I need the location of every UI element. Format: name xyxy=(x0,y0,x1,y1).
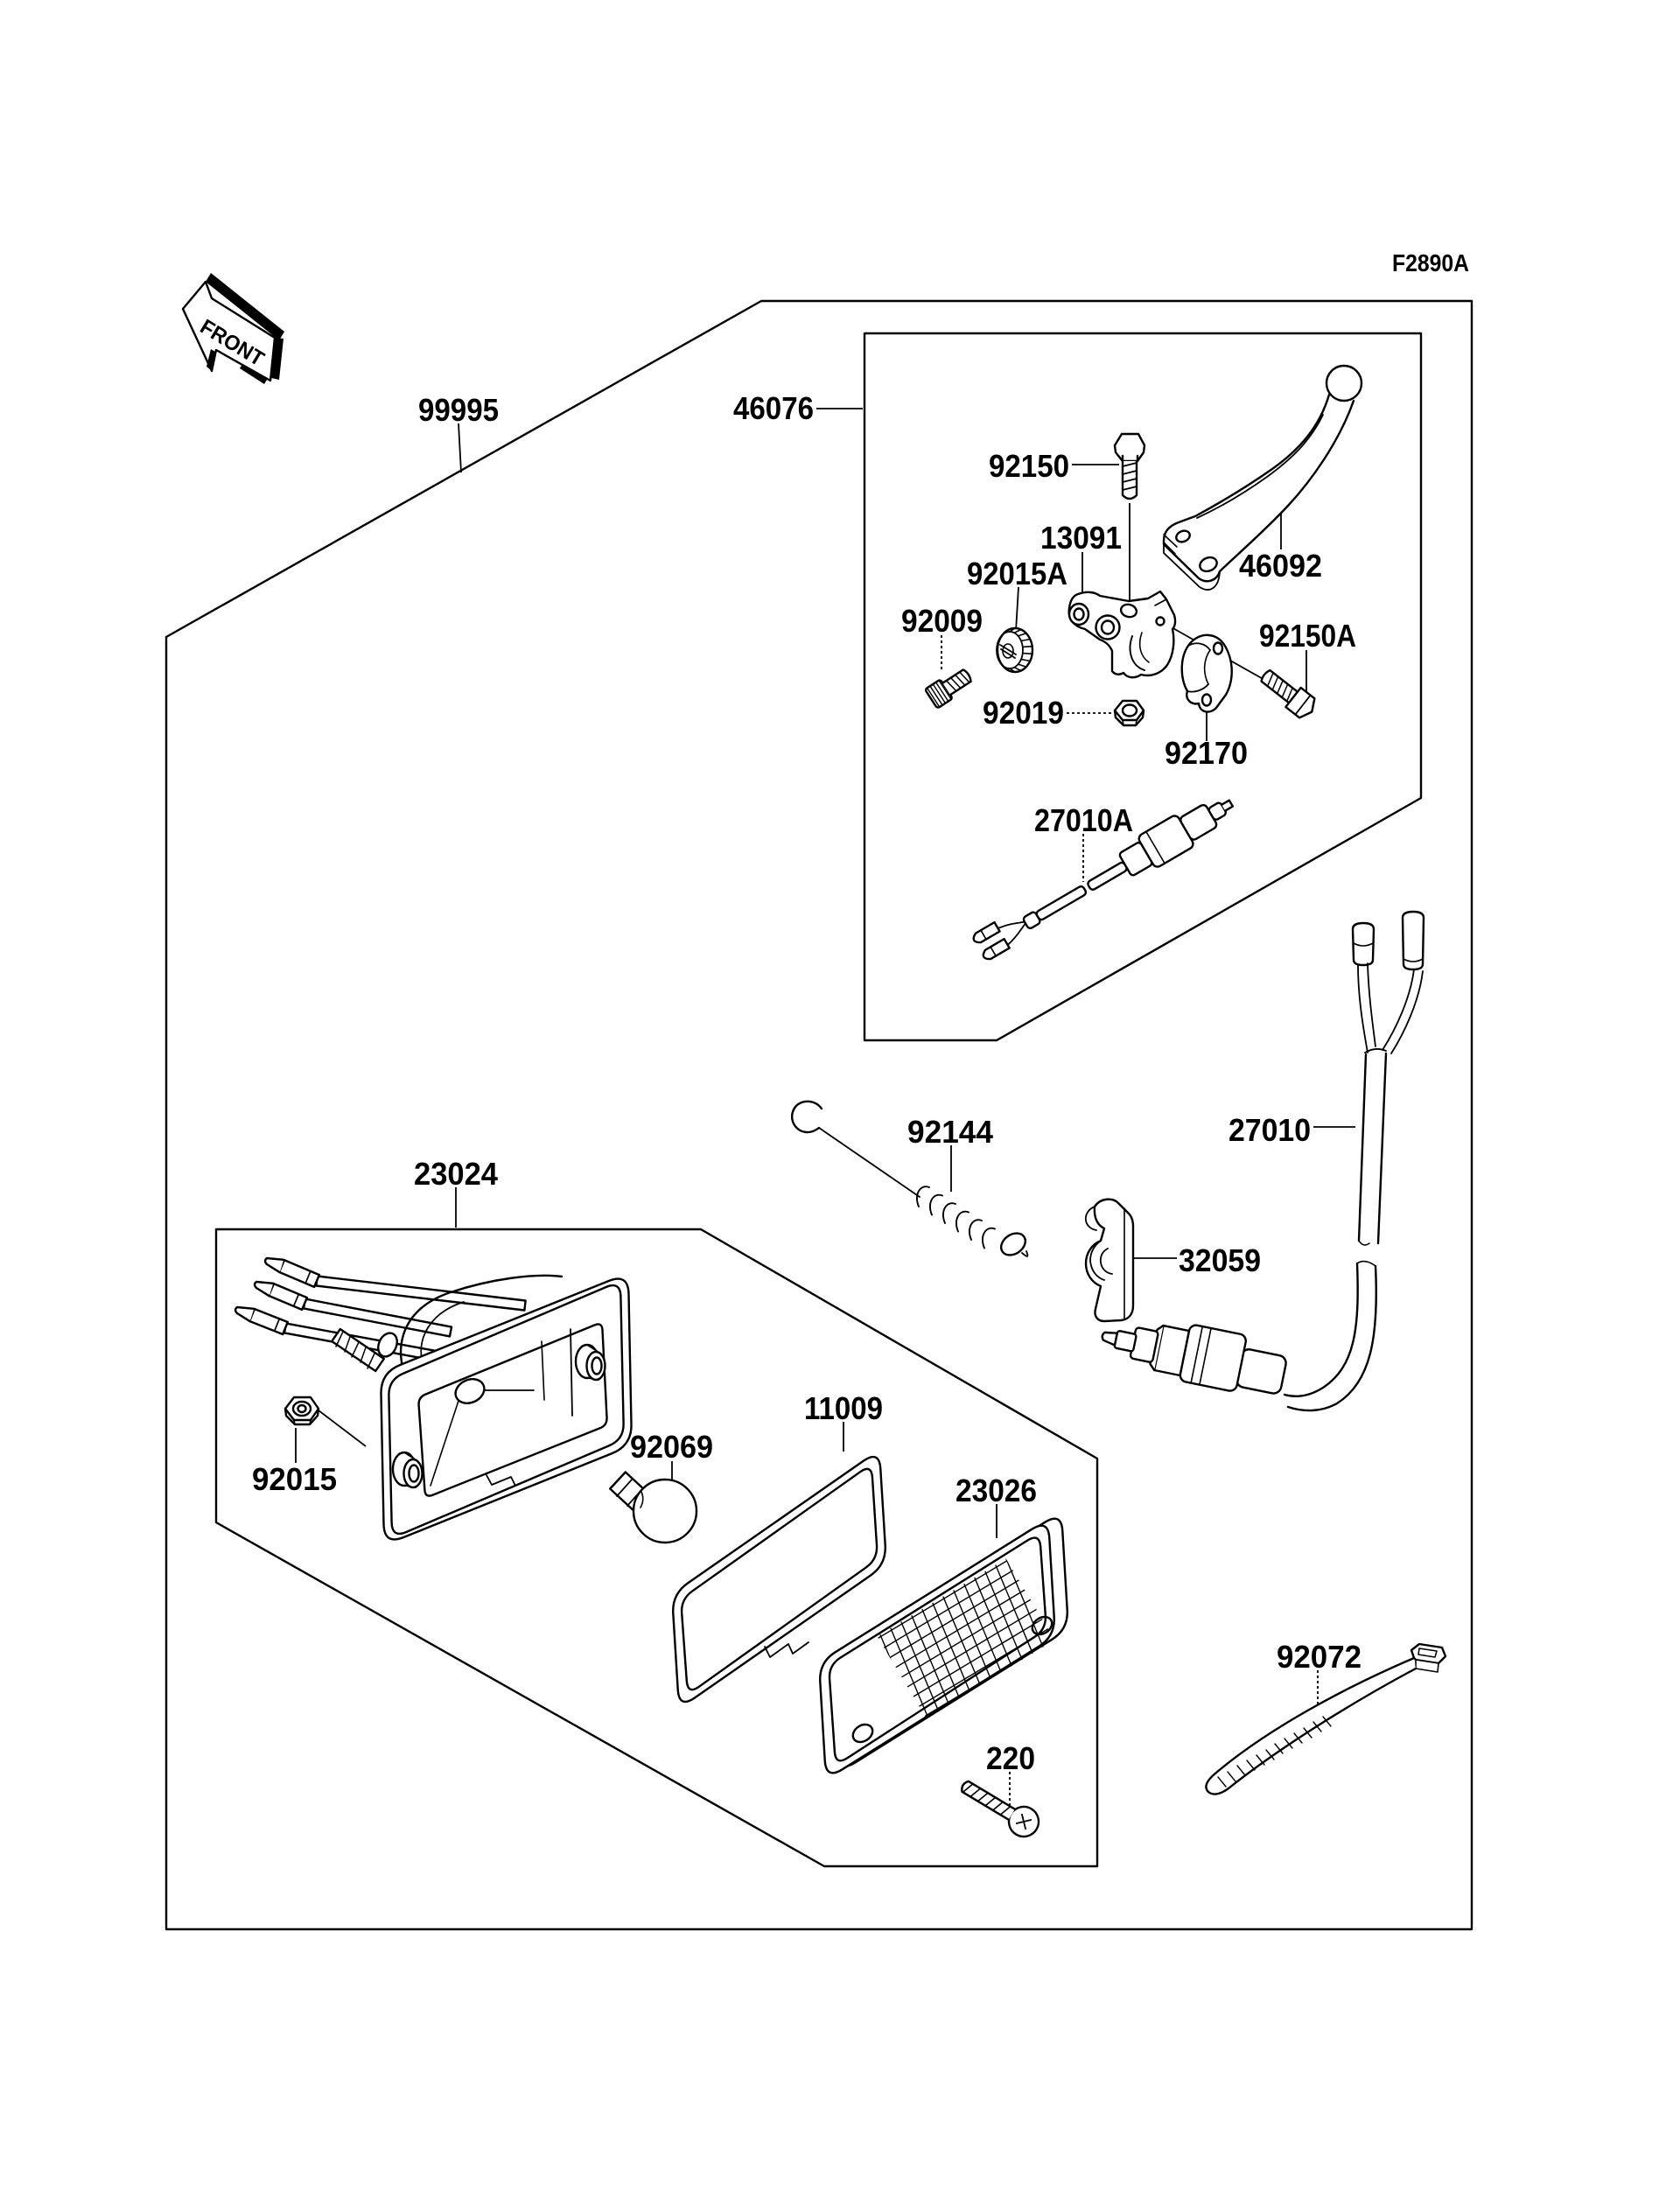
svg-text:23026: 23026 xyxy=(955,1473,1037,1508)
svg-text:F2890A: F2890A xyxy=(1392,249,1469,276)
svg-text:13091: 13091 xyxy=(1040,520,1122,556)
svg-text:92069: 92069 xyxy=(630,1429,713,1465)
svg-text:27010A: 27010A xyxy=(1034,802,1133,838)
svg-text:92015: 92015 xyxy=(252,1461,337,1497)
svg-text:92015A: 92015A xyxy=(967,556,1067,591)
svg-text:92144: 92144 xyxy=(907,1114,993,1150)
svg-text:92009: 92009 xyxy=(901,603,983,639)
svg-text:46092: 46092 xyxy=(1239,548,1322,584)
svg-text:23024: 23024 xyxy=(414,1156,498,1192)
svg-text:99995: 99995 xyxy=(418,392,499,428)
svg-text:220: 220 xyxy=(986,1740,1035,1776)
svg-text:92072: 92072 xyxy=(1277,1639,1361,1675)
svg-text:32059: 32059 xyxy=(1179,1242,1261,1278)
svg-text:92019: 92019 xyxy=(983,695,1064,731)
svg-text:92150: 92150 xyxy=(989,448,1069,484)
svg-text:27010: 27010 xyxy=(1228,1112,1311,1148)
svg-text:11009: 11009 xyxy=(804,1390,883,1426)
svg-text:92150A: 92150A xyxy=(1259,618,1356,654)
svg-text:46076: 46076 xyxy=(733,390,814,426)
